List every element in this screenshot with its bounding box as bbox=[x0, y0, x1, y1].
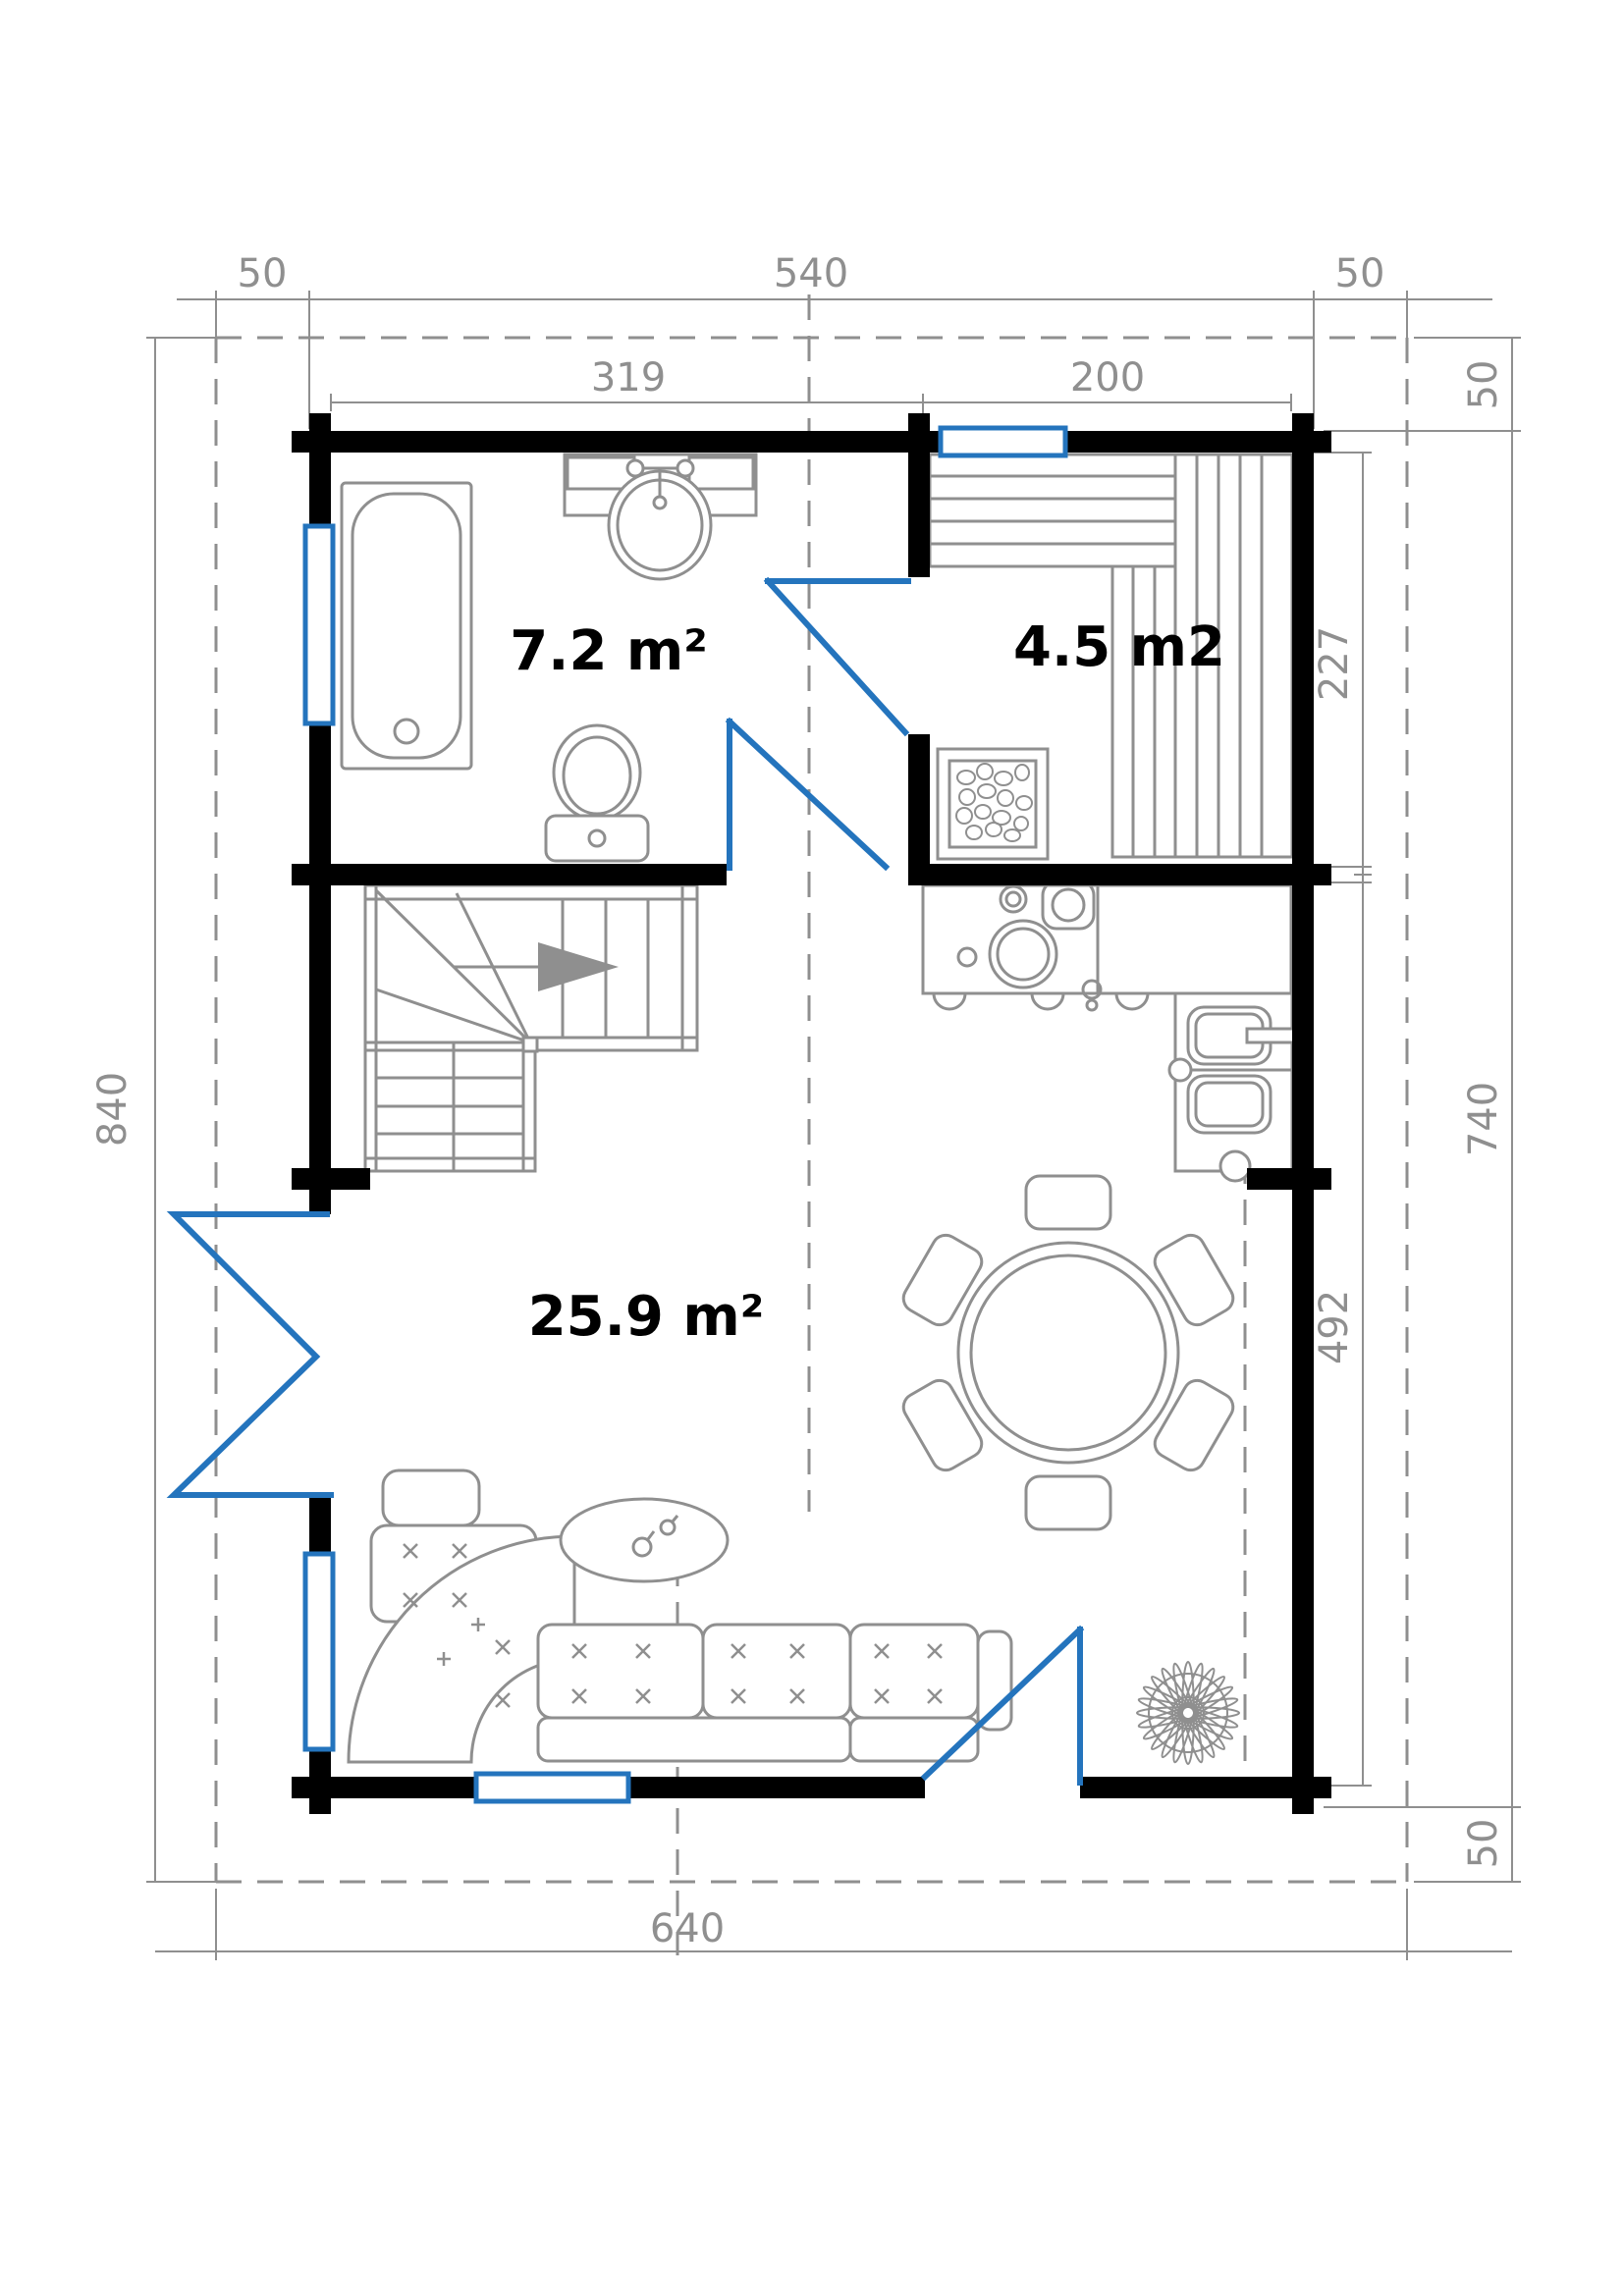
dim-right-total-height: 740 bbox=[1461, 1082, 1506, 1156]
dim-top-width: 540 bbox=[774, 251, 848, 296]
bathroom-window bbox=[305, 526, 333, 723]
living-area-label: 25.9 m² bbox=[528, 1285, 765, 1349]
dim-living-depth: 492 bbox=[1312, 1290, 1357, 1364]
dim-bathroom-width: 319 bbox=[591, 355, 666, 400]
dim-right-bottom-overhang: 50 bbox=[1461, 1819, 1506, 1869]
kitchen-counter bbox=[923, 881, 1291, 1010]
dim-right-top-overhang: 50 bbox=[1461, 360, 1506, 410]
sauna-window bbox=[941, 428, 1065, 455]
sauna-bench-step bbox=[1112, 566, 1175, 857]
dim-sauna-width: 200 bbox=[1070, 355, 1145, 400]
sauna-door-swing bbox=[768, 581, 908, 732]
living-room-bottom-window bbox=[476, 1774, 628, 1801]
floor-plan-drawing: 50 540 50 319 200 840 50 227 740 492 50 … bbox=[0, 0, 1624, 2296]
dim-bottom-total-width: 640 bbox=[650, 1906, 725, 1951]
dim-top-left-overhang: 50 bbox=[238, 251, 288, 296]
toilet bbox=[546, 725, 648, 861]
floor-plan-page: 50 540 50 319 200 840 50 227 740 492 50 … bbox=[0, 0, 1624, 2296]
potted-plant bbox=[1137, 1662, 1239, 1764]
sauna-area-label: 4.5 m2 bbox=[1013, 615, 1225, 679]
kitchen-sink bbox=[1169, 993, 1300, 1181]
dim-left-total-height: 840 bbox=[90, 1072, 135, 1147]
coffee-table bbox=[561, 1499, 728, 1581]
staircase bbox=[365, 885, 697, 1171]
dim-top-right-overhang: 50 bbox=[1335, 251, 1385, 296]
sauna-heater bbox=[938, 749, 1048, 859]
french-door-swing bbox=[174, 1214, 331, 1495]
washbasin bbox=[565, 454, 756, 579]
bathroom-area-label: 7.2 m² bbox=[510, 619, 708, 683]
sauna-bench-upper bbox=[930, 454, 1175, 566]
dining-table bbox=[898, 1176, 1238, 1529]
dim-sauna-depth: 227 bbox=[1312, 626, 1357, 701]
living-room-left-window bbox=[305, 1554, 333, 1749]
bathtub bbox=[342, 483, 471, 769]
